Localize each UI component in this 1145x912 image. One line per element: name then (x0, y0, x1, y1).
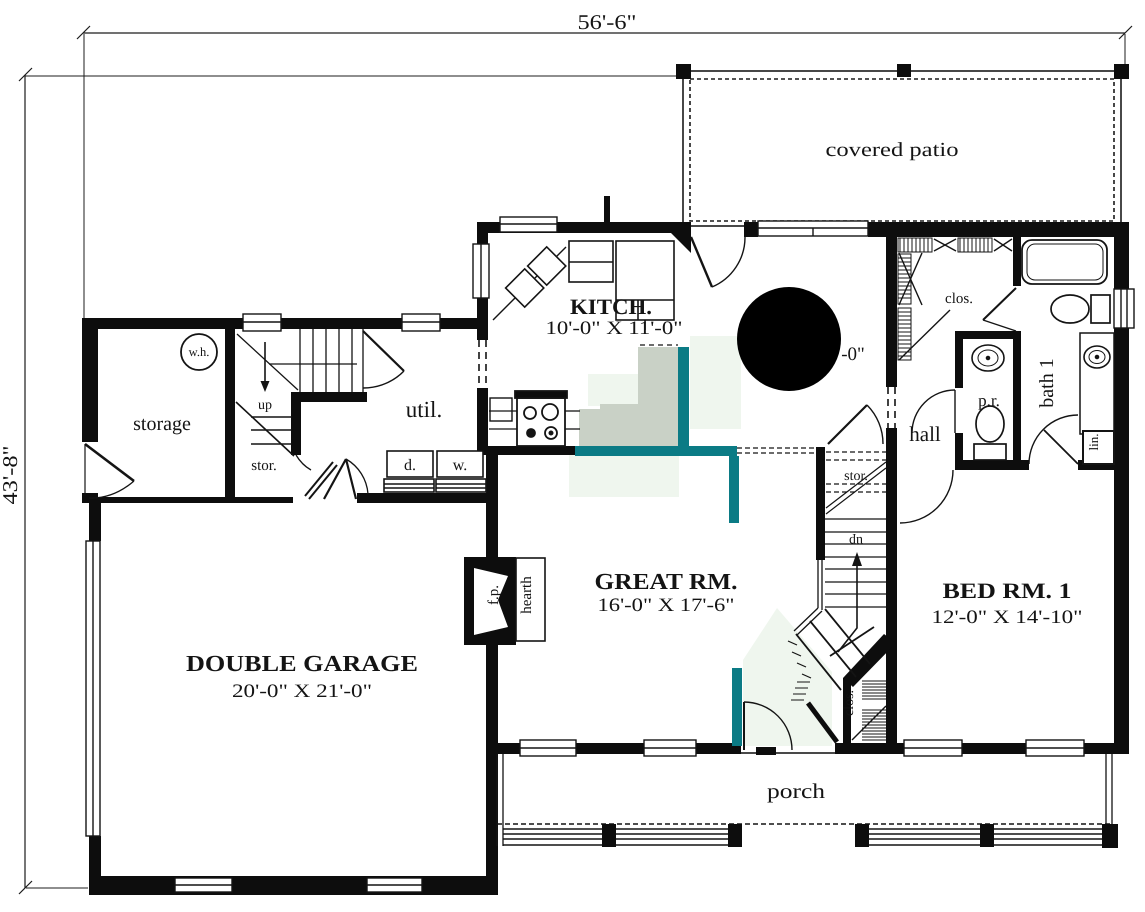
svg-text:12'-0" X 14'-10": 12'-0" X 14'-10" (932, 607, 1083, 628)
svg-text:clos.: clos. (945, 291, 973, 307)
svg-text:lin.: lin. (1086, 434, 1101, 451)
svg-text:p.r.: p.r. (978, 391, 1000, 410)
svg-text:stor.: stor. (251, 458, 276, 474)
svg-text:up: up (258, 398, 272, 413)
svg-text:56'-6": 56'-6" (578, 10, 637, 34)
svg-text:clos.: clos. (842, 690, 857, 716)
svg-text:d.: d. (404, 457, 416, 474)
svg-text:stor.: stor. (844, 469, 868, 484)
svg-text:util.: util. (406, 397, 442, 422)
svg-text:bath 1: bath 1 (1036, 358, 1058, 407)
svg-text:43'-8": 43'-8" (0, 446, 22, 505)
svg-text:20'-0" X 21'-0": 20'-0" X 21'-0" (232, 681, 372, 702)
svg-text:covered patio: covered patio (826, 139, 959, 161)
svg-text:DOUBLE GARAGE: DOUBLE GARAGE (186, 651, 418, 676)
svg-text:w.: w. (453, 457, 468, 474)
svg-text:up: up (849, 533, 863, 548)
svg-text:10'-0" X 11'-0": 10'-0" X 11'-0" (546, 318, 683, 339)
svg-text:KITCH.: KITCH. (570, 294, 652, 319)
svg-text:w.h.: w.h. (189, 345, 210, 359)
svg-text:hall: hall (909, 422, 941, 446)
svg-text:GREAT RM.: GREAT RM. (595, 569, 738, 594)
svg-text:16'-0" X 17'-6": 16'-0" X 17'-6" (598, 595, 735, 616)
svg-text:porch: porch (767, 779, 826, 803)
svg-text:storage: storage (133, 413, 191, 435)
svg-text:hearth: hearth (519, 576, 535, 614)
svg-text:-0": -0" (841, 344, 865, 365)
svg-text:BED RM. 1: BED RM. 1 (943, 578, 1072, 603)
svg-text:f.p.: f.p. (486, 585, 502, 605)
